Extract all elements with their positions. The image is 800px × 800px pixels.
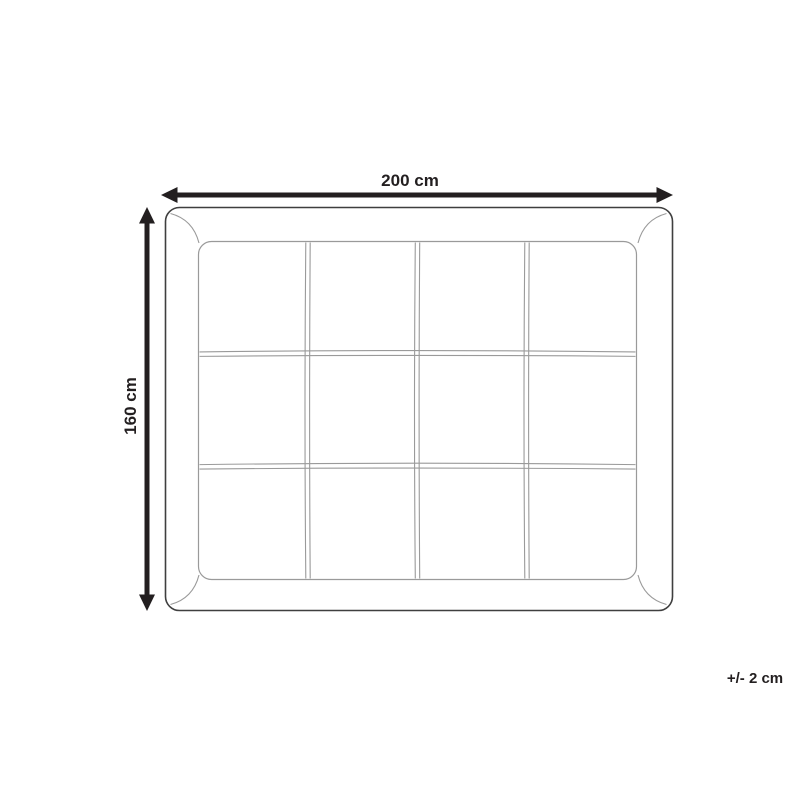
- quilted-panel-edge: [199, 242, 637, 580]
- quilt-seam: [419, 243, 420, 579]
- width-arrowhead-right: [657, 187, 674, 203]
- width-label: 200 cm: [381, 171, 439, 190]
- height-dimension: 160 cm: [121, 207, 155, 611]
- width-dimension: 200 cm: [161, 171, 673, 203]
- height-arrowhead-bottom: [139, 595, 155, 612]
- height-arrowhead-top: [139, 207, 155, 224]
- product-outline: [166, 208, 673, 611]
- tolerance-label: +/- 2 cm: [727, 670, 783, 687]
- height-label: 160 cm: [121, 377, 140, 435]
- page: 200 cm 160 cm +/- 2 cm: [0, 0, 800, 800]
- quilt-seam: [529, 243, 530, 579]
- width-arrowhead-left: [161, 187, 178, 203]
- quilt-seam: [310, 243, 311, 579]
- dimension-diagram: 200 cm 160 cm +/- 2 cm: [0, 0, 800, 800]
